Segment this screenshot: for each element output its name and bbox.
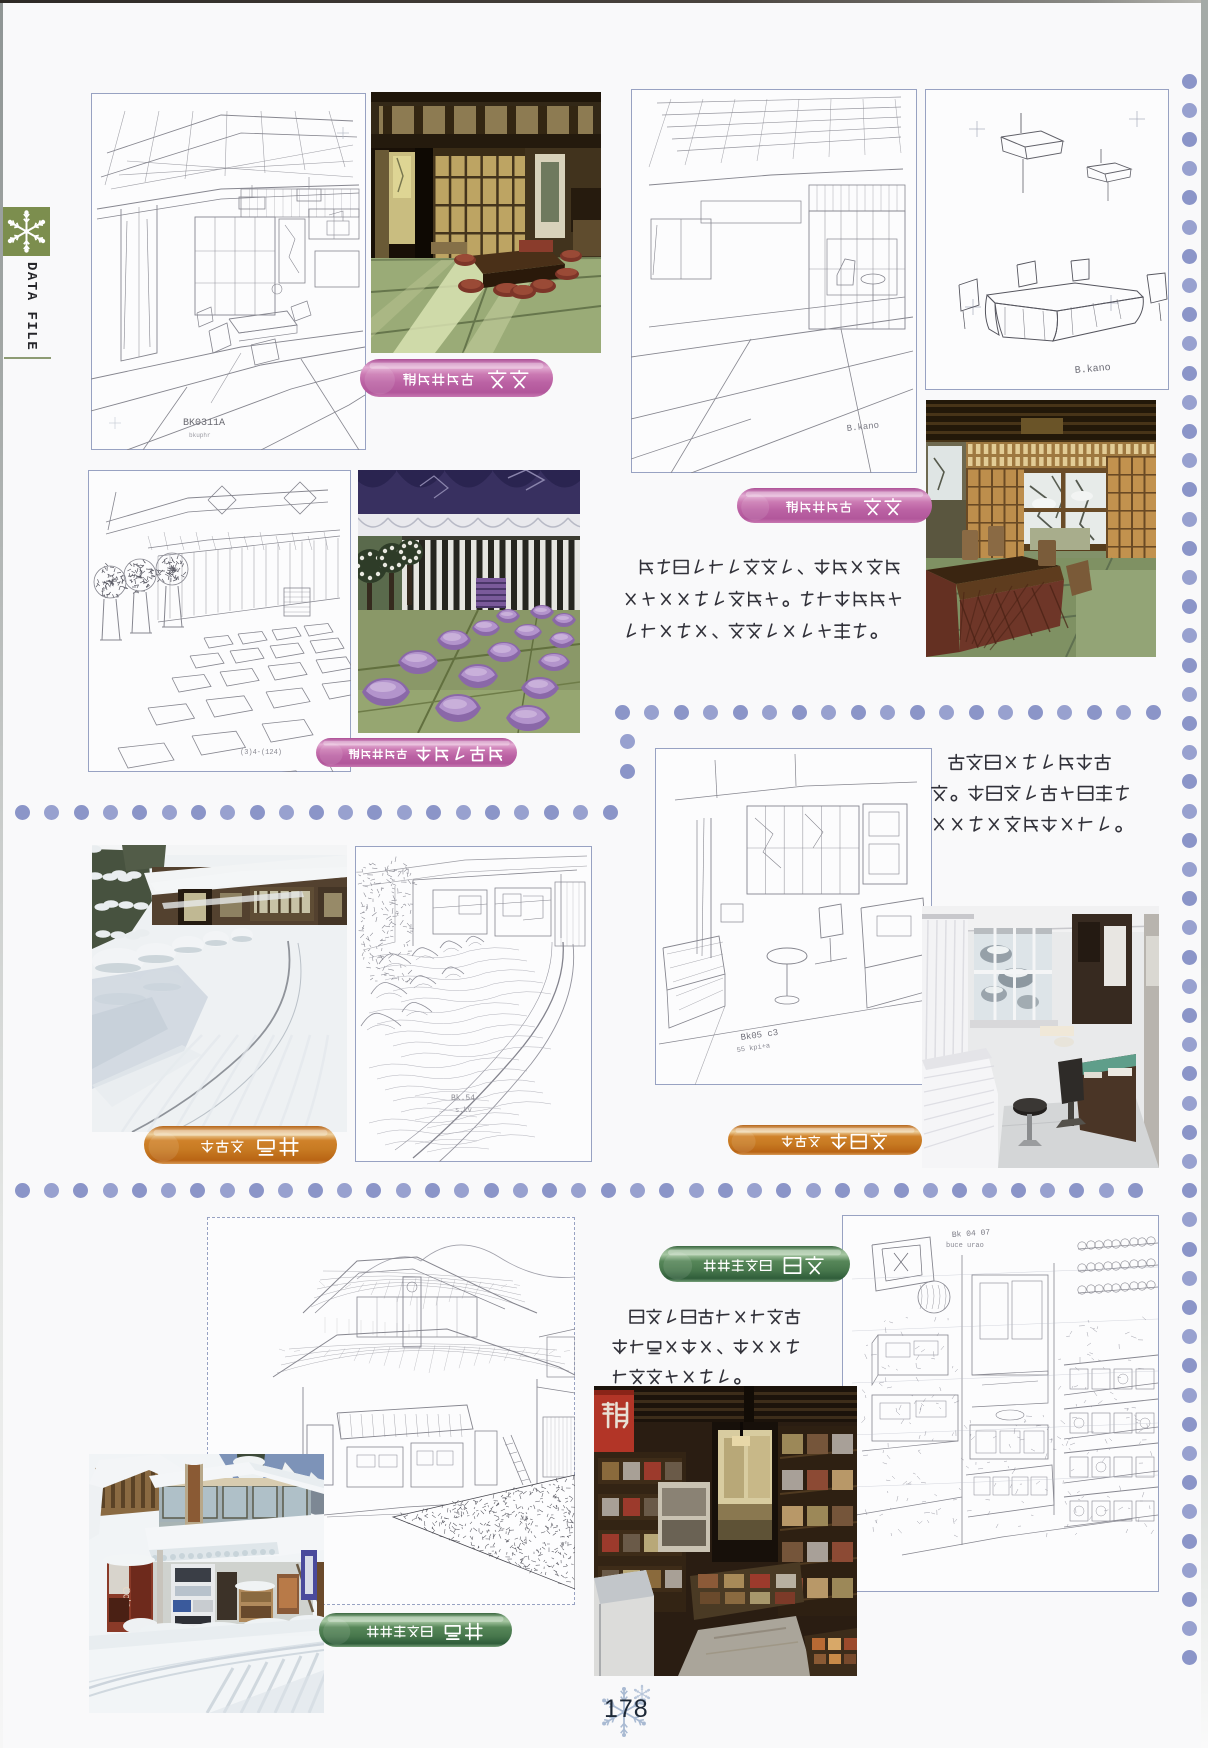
svg-text:BK0311A: BK0311A <box>183 418 225 429</box>
svg-text:s.kv: s.kv <box>455 1107 472 1115</box>
svg-text:(3)4-(124): (3)4-(124) <box>240 749 282 757</box>
svg-text:Bk 04 07: Bk 04 07 <box>952 1228 991 1240</box>
svg-text:Bk.54: Bk.54 <box>451 1094 475 1103</box>
svg-text:B.kano: B.kano <box>846 421 879 434</box>
svg-text:B.kano: B.kano <box>1074 362 1111 377</box>
svg-text:buce urao: buce urao <box>946 1242 984 1250</box>
svg-text:bkuphr: bkuphr <box>189 432 211 439</box>
svg-text:55 kpi+a: 55 kpi+a <box>736 1042 770 1055</box>
